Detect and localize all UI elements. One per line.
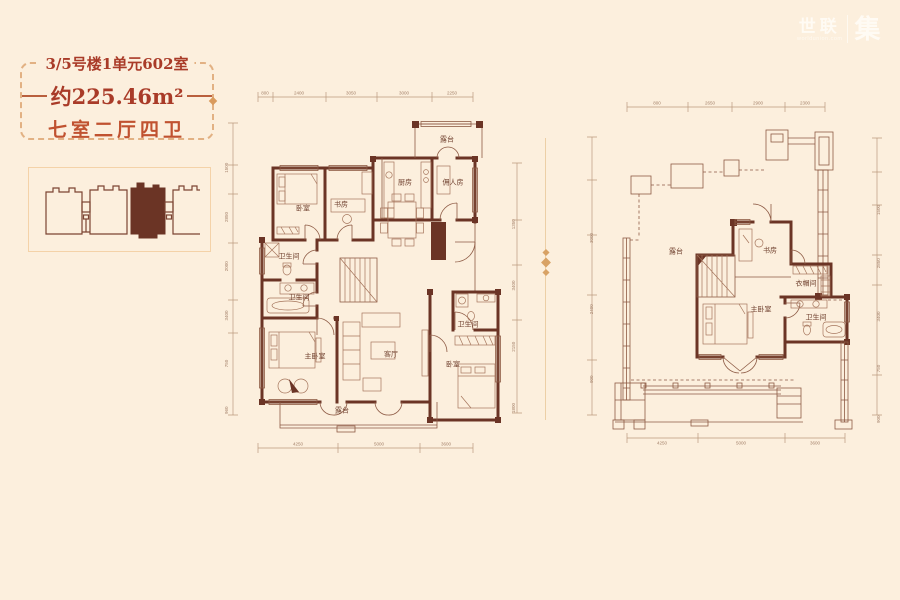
floor2-plan-drawing xyxy=(585,90,895,480)
dimension-chain-left: 900 2400 3000 xyxy=(589,233,594,383)
dimension-label: 800 xyxy=(653,101,661,106)
building-key-plan xyxy=(28,167,211,252)
room-label: 主卧室 xyxy=(751,307,772,314)
dimension-label: 2900 xyxy=(753,101,763,106)
logo-divider xyxy=(847,15,848,43)
room-label: 卫生间 xyxy=(289,295,310,302)
floor1-doors xyxy=(303,147,475,415)
room-label: 厨房 xyxy=(398,180,412,187)
room-label: 卫生间 xyxy=(279,254,300,261)
floor1-windows xyxy=(260,122,501,405)
floor2-windows xyxy=(699,220,850,360)
floor1-plan-drawing xyxy=(225,80,525,480)
dimension-label: 800 xyxy=(261,91,269,96)
floor2-furniture xyxy=(703,229,845,344)
tower-outlines xyxy=(46,183,200,238)
room-label: 书房 xyxy=(763,248,777,255)
room-label: 卧室 xyxy=(296,206,310,213)
dimension-chain-right: 1800 2150 3400 1350 xyxy=(511,219,516,413)
room-configuration: 七室二厅四卫 xyxy=(22,115,212,142)
divider-ornament-icon xyxy=(542,249,549,256)
dimension-label: 3600 xyxy=(441,442,451,447)
room-label: 佣人房 xyxy=(443,180,464,187)
floorplan-page: 3/5号楼1单元602室 约225.46m² 七室二厅四卫 xyxy=(0,0,900,600)
brand-logo: 世联 worldunion.com 集 xyxy=(797,15,881,43)
room-label: 客厅 xyxy=(384,352,398,359)
dimension-label: 2300 xyxy=(800,101,810,106)
floor2-stair xyxy=(697,255,735,297)
dimension-label: 3000 xyxy=(399,91,409,96)
decor-line-left xyxy=(22,95,47,97)
brand-name-block: 世联 worldunion.com xyxy=(797,17,843,42)
room-label: 卫生间 xyxy=(806,315,827,322)
room-label: 卫生间 xyxy=(458,322,479,329)
room-label: 露台 xyxy=(335,408,349,415)
room-label: 主卧室 xyxy=(305,354,326,361)
dimension-label: 2250 xyxy=(447,91,457,96)
dimension-label: 4250 xyxy=(657,441,667,446)
floor1-furniture xyxy=(265,162,495,408)
brand-domain: worldunion.com xyxy=(797,36,843,42)
divider-ornament-icon xyxy=(542,269,549,276)
room-label: 露台 xyxy=(440,137,454,144)
floor2-dimension-lines xyxy=(587,102,882,443)
floor1-stair xyxy=(340,258,377,302)
area-row: 约225.46m² xyxy=(22,81,212,111)
brand-name: 世联 xyxy=(799,17,841,36)
dimension-chain-left: 960 750 3400 2000 2850 1500 xyxy=(224,163,229,414)
floor1-dimension-lines xyxy=(228,92,522,453)
floor2-pergola xyxy=(613,342,852,429)
dimension-label: 5000 xyxy=(374,442,384,447)
room-label: 衣帽间 xyxy=(796,281,817,288)
dimension-label: 5000 xyxy=(736,441,746,446)
dimension-label: 3050 xyxy=(346,91,356,96)
decor-line-right xyxy=(187,95,212,97)
room-label: 书房 xyxy=(334,202,348,209)
dimension-label: 2650 xyxy=(705,101,715,106)
dimension-chain-right: 900 750 3400 2850 1500 xyxy=(876,205,881,423)
unit-info-card: 3/5号楼1单元602室 约225.46m² 七室二厅四卫 xyxy=(20,62,214,140)
floor2-walls xyxy=(697,219,850,357)
dimension-label: 4250 xyxy=(293,442,303,447)
area-value: 约225.46m² xyxy=(47,81,188,111)
dimension-label: 3600 xyxy=(810,441,820,446)
building-silhouette-drawing xyxy=(40,180,200,240)
dimension-label: 2400 xyxy=(294,91,304,96)
unit-number-title: 3/5号楼1单元602室 xyxy=(39,53,194,74)
floor1-terrace-rail xyxy=(280,402,437,432)
highlighted-unit xyxy=(131,183,165,238)
plan-divider-line xyxy=(545,138,546,420)
divider-ornament-icon xyxy=(541,258,551,268)
room-label: 卧室 xyxy=(446,362,460,369)
room-label: 露台 xyxy=(669,249,683,256)
brand-mark: 集 xyxy=(855,16,881,42)
